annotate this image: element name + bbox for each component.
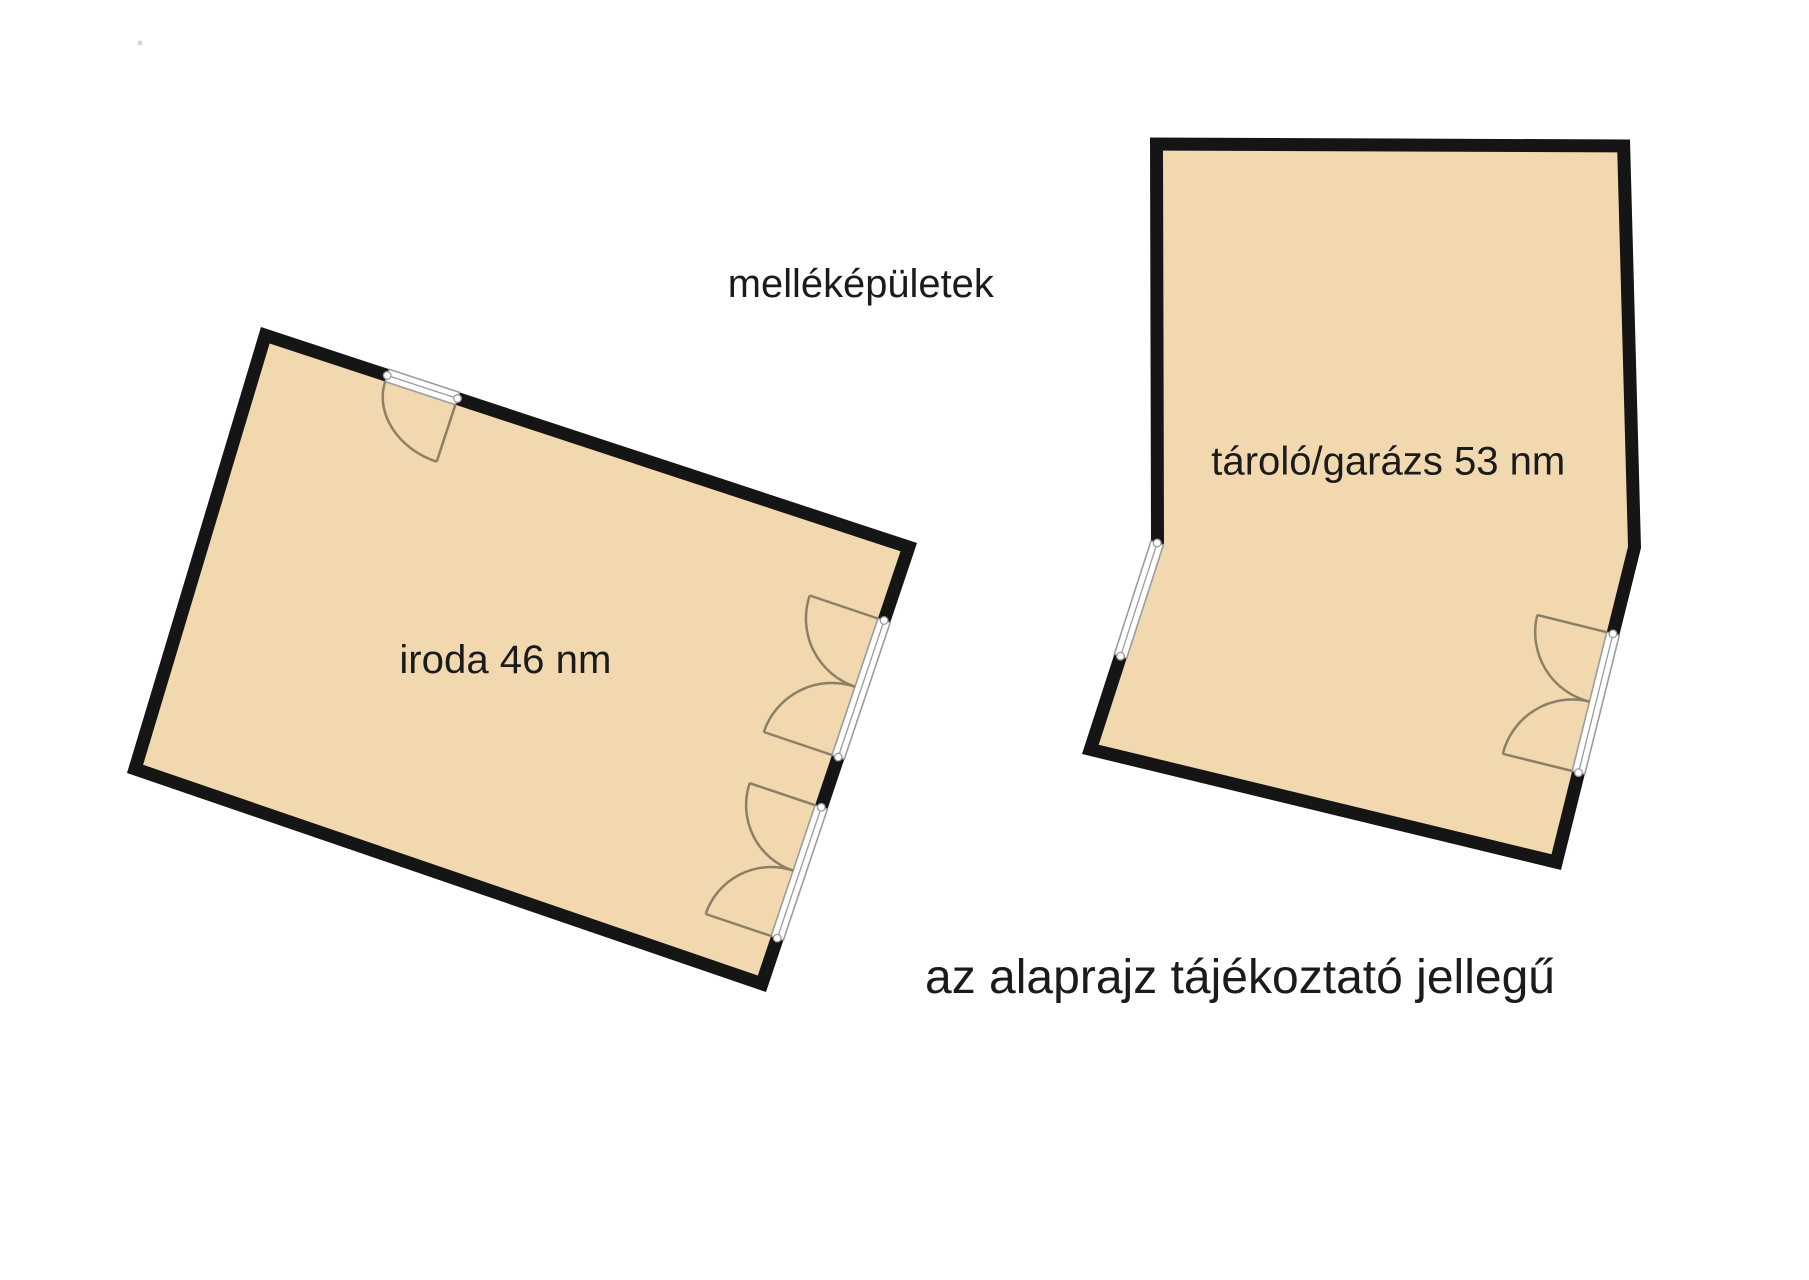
svg-text:az alaprajz tájékoztató jelleg: az alaprajz tájékoztató jellegű bbox=[925, 951, 1555, 1004]
svg-text:tároló/garázs 53 nm: tároló/garázs 53 nm bbox=[1211, 440, 1565, 484]
svg-text:iroda 46 nm: iroda 46 nm bbox=[399, 638, 611, 682]
svg-text:melléképületek: melléképületek bbox=[728, 262, 995, 306]
